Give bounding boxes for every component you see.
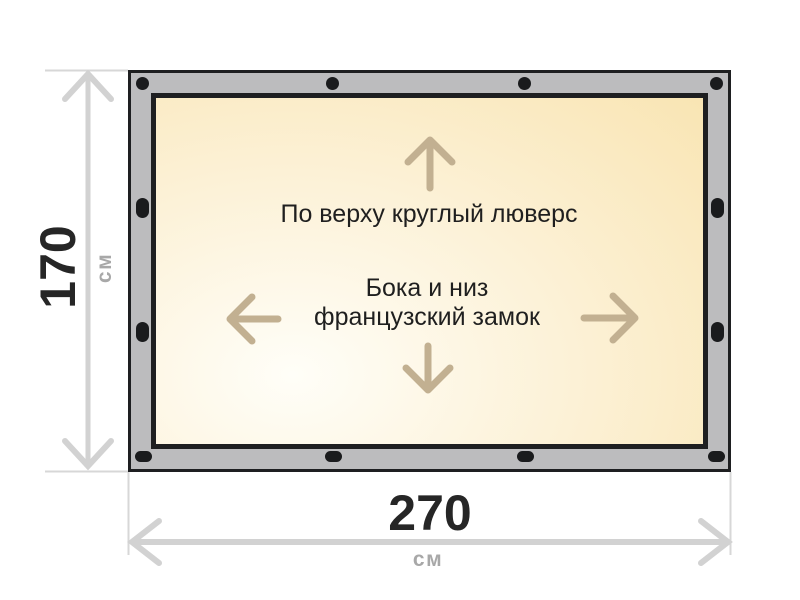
lock-left-1-icon bbox=[136, 198, 149, 218]
top-note: По верху круглый люверс bbox=[209, 200, 649, 228]
width-value: 270 bbox=[330, 488, 530, 538]
height-arrowhead-down-icon bbox=[65, 441, 111, 466]
lock-bottom-3-icon bbox=[517, 451, 534, 462]
height-arrowhead-up-icon bbox=[65, 74, 111, 99]
width-arrowhead-left-icon bbox=[132, 521, 159, 563]
banner-dimension-diagram: По верху круглый люверс Бока и низ франц… bbox=[0, 0, 800, 600]
lock-bottom-1-icon bbox=[135, 451, 152, 462]
lock-left-2-icon bbox=[136, 322, 149, 342]
lock-bottom-2-icon bbox=[325, 451, 342, 462]
height-unit: см bbox=[94, 218, 116, 318]
middle-note: Бока и низ французский замок bbox=[207, 274, 647, 332]
lock-bottom-4-icon bbox=[708, 451, 725, 462]
middle-note-line2: французский замок bbox=[207, 303, 647, 332]
width-arrowhead-right-icon bbox=[701, 521, 728, 563]
grommet-top-1-icon bbox=[136, 77, 149, 90]
banner-frame bbox=[128, 70, 731, 472]
grommet-top-3-icon bbox=[518, 77, 531, 90]
lock-right-1-icon bbox=[711, 198, 724, 218]
grommet-top-4-icon bbox=[710, 77, 723, 90]
lock-right-2-icon bbox=[711, 322, 724, 342]
middle-note-line1: Бока и низ bbox=[207, 274, 647, 303]
banner-panel bbox=[151, 93, 708, 449]
height-value: 170 bbox=[33, 167, 83, 367]
grommet-top-2-icon bbox=[326, 77, 339, 90]
width-unit: см bbox=[378, 549, 478, 571]
